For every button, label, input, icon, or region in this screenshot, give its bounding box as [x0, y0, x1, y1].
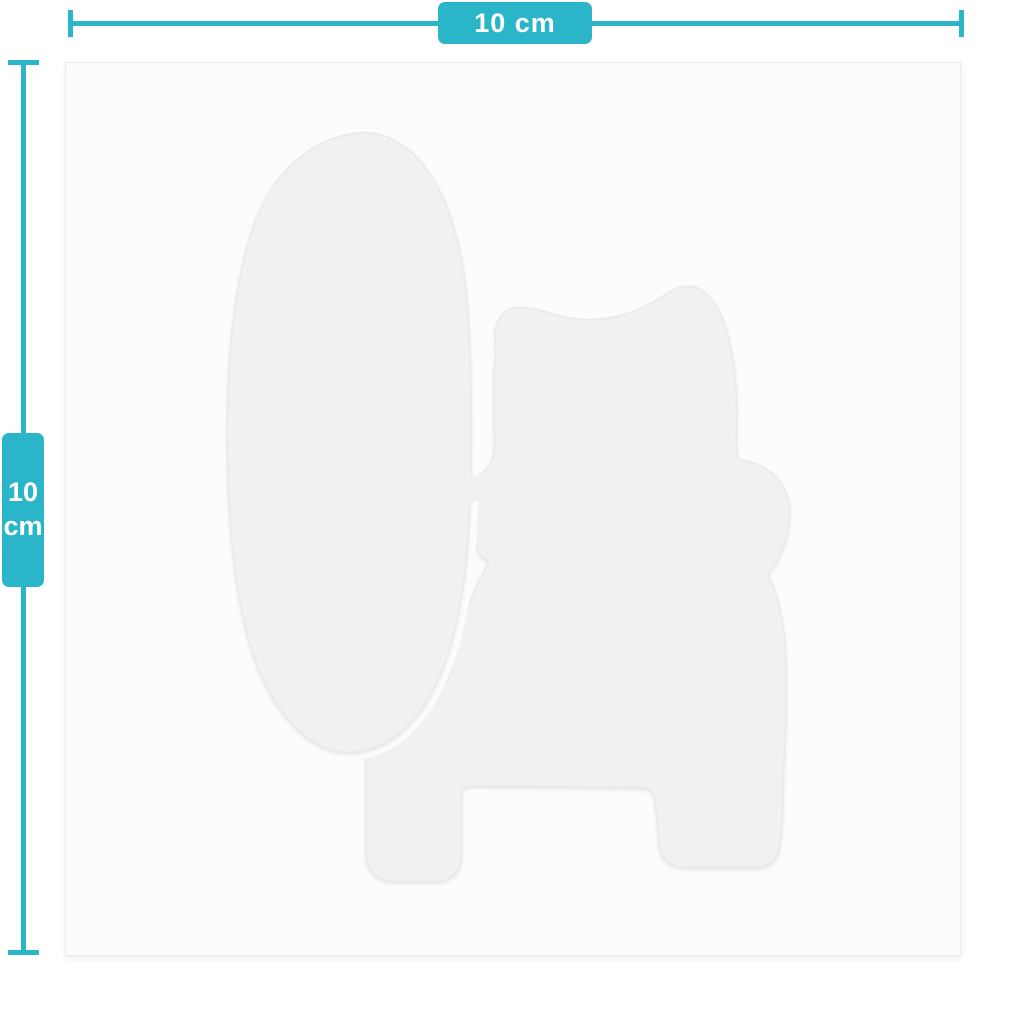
cat-paw-connector: [453, 475, 487, 503]
dimension-diagram: 10 cm 10 cm: [0, 0, 1024, 1024]
horizontal-dimension-label: 10 cm: [474, 8, 556, 39]
vertical-dimension-badge: 10 cm: [2, 433, 44, 587]
horizontal-dimension-badge: 10 cm: [438, 2, 592, 44]
vertical-dimension-unit: cm: [3, 510, 42, 544]
vertical-ruler-top-tick: [8, 60, 39, 65]
horizontal-ruler-left-tick: [68, 10, 73, 37]
horizontal-ruler-right-tick: [959, 10, 964, 37]
sticker-silhouette-svg: [66, 63, 960, 955]
vertical-dimension-value: 10: [8, 476, 38, 510]
oval-sign-silhouette: [227, 133, 471, 752]
vertical-ruler-bottom-tick: [8, 950, 39, 955]
sticker-canvas: [65, 62, 961, 956]
